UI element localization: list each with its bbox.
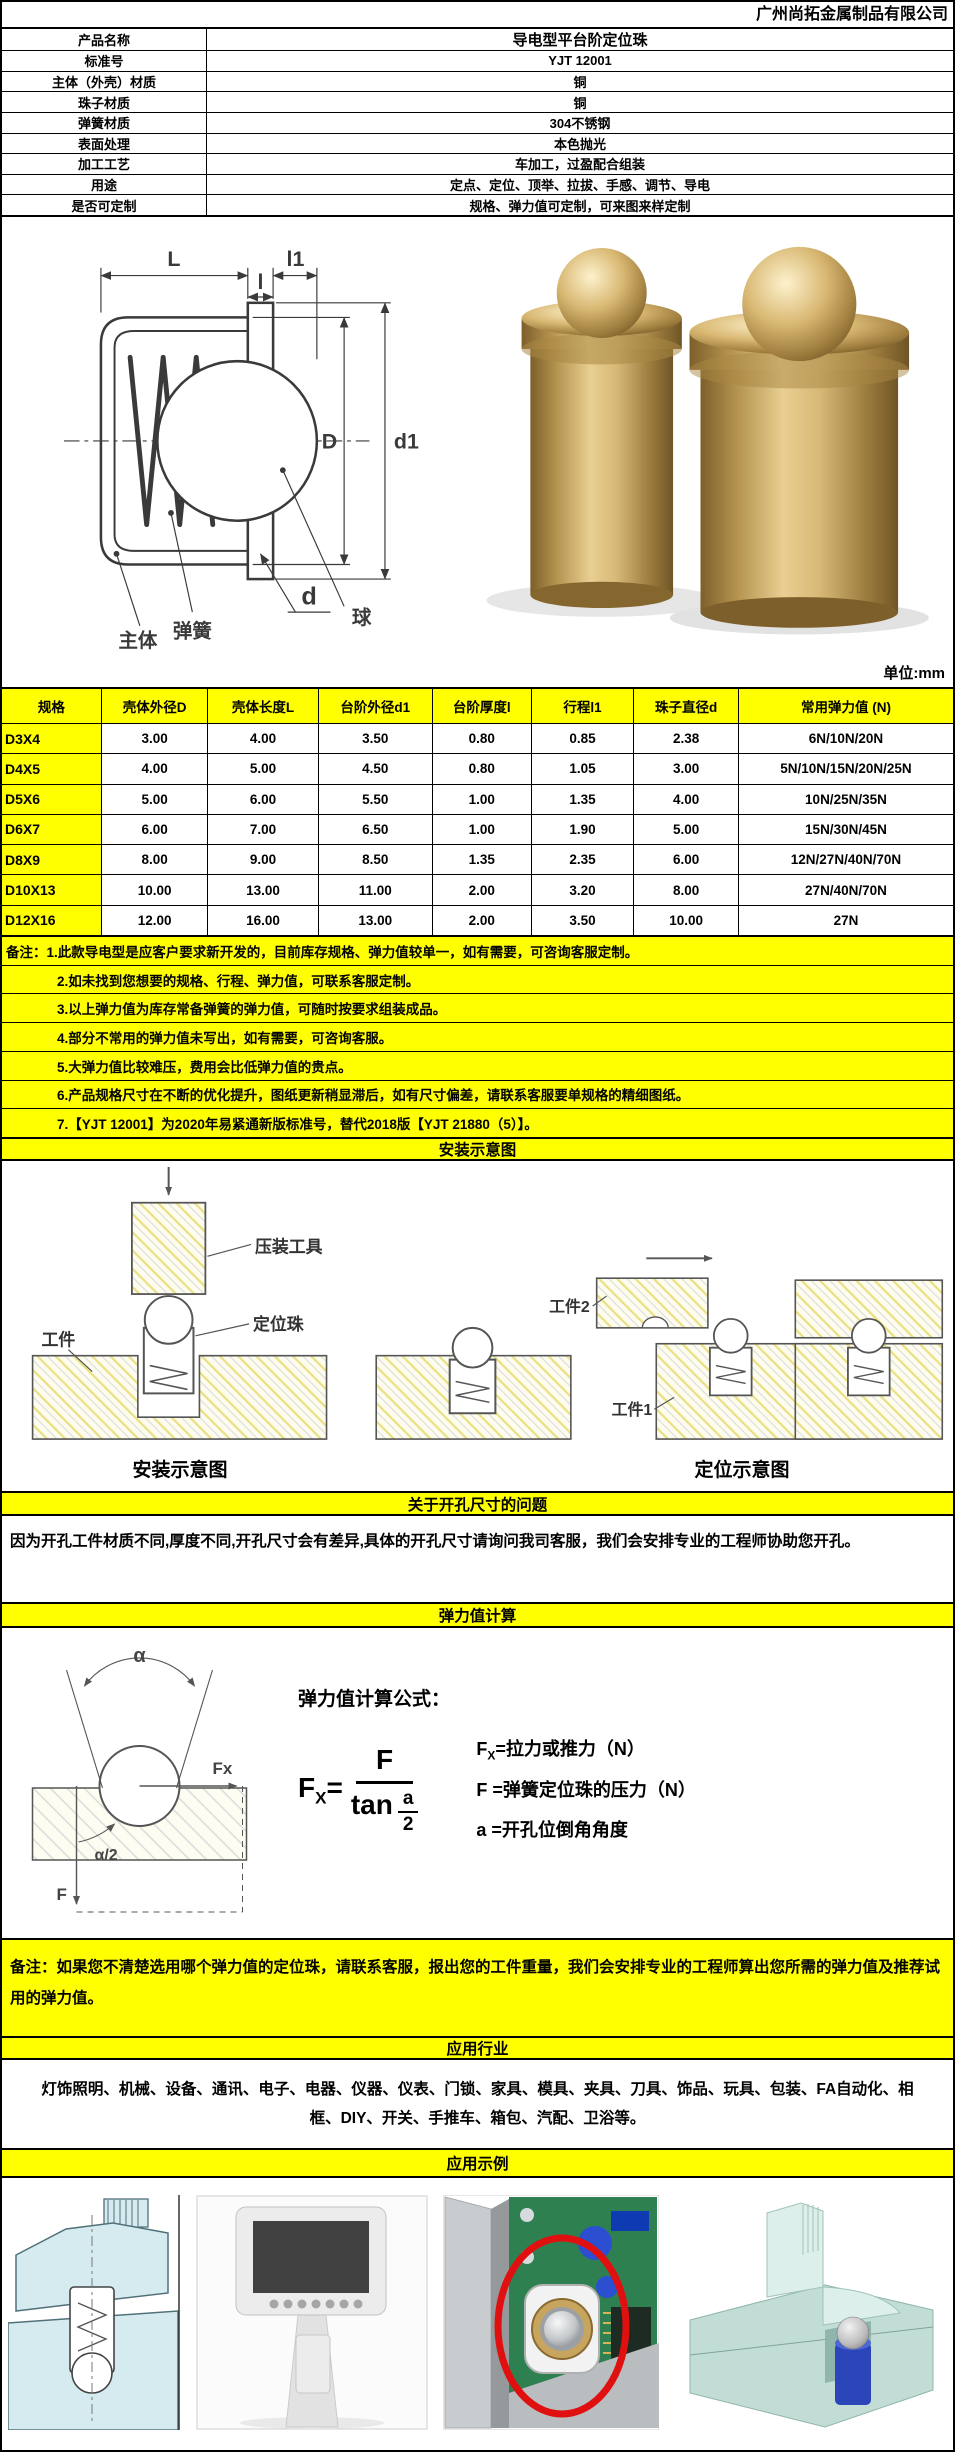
size-cell: 27N <box>739 906 953 935</box>
spec-value: 铜 <box>207 72 953 92</box>
size-cell: 1.90 <box>532 815 635 844</box>
size-cell: 6.00 <box>634 845 739 874</box>
dim-l-label: l <box>257 270 263 294</box>
fx-label: Fx <box>213 1759 233 1778</box>
f-label: F <box>57 1885 67 1904</box>
spec-label: 表面处理 <box>2 134 207 154</box>
spec-row: 是否可定制 规格、弹力值可定制，可来图来样定制 <box>2 195 953 215</box>
size-cell: 1.00 <box>433 785 532 814</box>
ball <box>742 247 856 361</box>
note-line: 2.如未找到您想要的规格、行程、弹力值，可联系客服定制。 <box>2 966 953 995</box>
column-header: 珠子直径d <box>634 689 739 723</box>
spec-value: 定点、定位、顶举、拉拔、手感、调节、导电 <box>207 175 953 195</box>
spec-label: 标准号 <box>2 51 207 71</box>
spring-force-formula: FX= F tan a 2 <box>298 1744 418 1835</box>
dimension-drawing-area: L l1 l D d1 d 弹簧 球 主体 <box>2 217 953 687</box>
note-line: 5.大弹力值比较难压，费用会比低弹力值的贵点。 <box>2 1052 953 1081</box>
size-cell: 8.00 <box>634 875 739 904</box>
formula-legend: FX=拉力或推力（N） F =弹簧定位珠的压力（N） a =开孔位倒角角度 <box>476 1729 696 1851</box>
product-sheet: 广州尚拓金属制品有限公司 产品名称 导电型平台阶定位珠 标准号 YJT 1200… <box>0 0 955 2452</box>
spec-row: 珠子材质 铜 <box>2 92 953 113</box>
size-cell: 27N/40N/70N <box>739 875 953 904</box>
size-table-header: 规格 壳体外径D 壳体长度L 台阶外径d1 台阶厚度l 行程l1 珠子直径d 常… <box>2 689 953 723</box>
press-tool-label: 压装工具 <box>255 1236 323 1256</box>
spec-row: 标准号 YJT 12001 <box>2 51 953 72</box>
size-cell: 5.00 <box>634 815 739 844</box>
size-cell: D3X4 <box>2 724 102 753</box>
spec-value: 本色抛光 <box>207 134 953 154</box>
size-cell: 5.00 <box>102 785 209 814</box>
size-cell: 12N/27N/40N/70N <box>739 845 953 874</box>
formula-equals: = <box>326 1772 342 1803</box>
size-cell: 1.00 <box>433 815 532 844</box>
spec-value: 规格、弹力值可定制，可来图来样定制 <box>207 195 953 215</box>
formula-lhs-sub: X <box>315 1788 326 1807</box>
size-cell: 5.00 <box>208 754 318 783</box>
product-photo <box>470 235 942 643</box>
ball <box>714 1319 748 1353</box>
enclosure-panel <box>445 2197 491 2428</box>
size-cell: 2.00 <box>433 906 532 935</box>
size-cell: 4.00 <box>634 785 739 814</box>
size-cell: 2.35 <box>532 845 635 874</box>
size-cell: 3.20 <box>532 875 635 904</box>
ball <box>837 2317 869 2349</box>
column-header: 台阶厚度l <box>433 689 532 723</box>
remark-block: 备注：如果您不清楚选用哪个弹力值的定位珠，请联系客服，报出您的工件重量，我们会安… <box>2 1938 953 2036</box>
example-image-cross-section <box>8 2195 180 2430</box>
size-cell: 2.00 <box>433 875 532 904</box>
dim-l1-label: l1 <box>287 247 305 271</box>
spec-row: 弹簧材质 304不锈钢 <box>2 113 953 134</box>
size-cell: 9.00 <box>208 845 318 874</box>
legend-line: F =弹簧定位珠的压力（N） <box>476 1770 696 1811</box>
size-cell: 4.00 <box>208 724 318 753</box>
spec-value: 车加工，过盈配合组装 <box>207 154 953 174</box>
size-cell: 13.00 <box>208 875 318 904</box>
half-angle-label: α/2 <box>95 1847 118 1864</box>
plunger-photo-right <box>690 247 910 628</box>
size-cell: 6.00 <box>208 785 318 814</box>
spec-row: 表面处理 本色抛光 <box>2 134 953 155</box>
size-cell: 8.50 <box>319 845 433 874</box>
screen <box>253 2221 369 2293</box>
note-line: 3.以上弹力值为库存常备弹簧的弹力值，可随时按要求组装成品。 <box>2 994 953 1023</box>
formula-tan: tan <box>351 1789 393 1821</box>
install-diagram: 压装工具 工件 定位珠 工件2 <box>2 1161 953 1449</box>
formula-numerator: F <box>356 1744 413 1784</box>
size-cell: 2.38 <box>634 724 739 753</box>
workpiece-label: 工件 <box>42 1330 76 1350</box>
install-section-title: 安装示意图 <box>2 1137 953 1161</box>
formula-angle: a <box>398 1789 419 1813</box>
spec-label: 主体（外壳）材质 <box>2 72 207 92</box>
size-table: 规格 壳体外径D 壳体长度L 台阶外径d1 台阶厚度l 行程l1 珠子直径d 常… <box>2 687 953 937</box>
size-cell: 6.50 <box>319 815 433 844</box>
spec-value: 铜 <box>207 92 953 112</box>
industries-text: 灯饰照明、机械、设备、通讯、电子、电器、仪器、仪表、门锁、家具、模具、夹具、刀具… <box>2 2060 953 2148</box>
column-header: 壳体外径D <box>102 689 209 723</box>
install-step-press <box>33 1167 327 1439</box>
spec-label: 是否可定制 <box>2 195 207 215</box>
ball <box>544 2311 580 2347</box>
stand-door <box>296 2335 330 2393</box>
table-row: D6X7 6.00 7.00 6.50 1.00 1.90 5.00 15N/3… <box>2 814 953 844</box>
size-cell: 10.00 <box>634 906 739 935</box>
size-cell: 1.35 <box>532 785 635 814</box>
spec-label: 弹簧材质 <box>2 113 207 133</box>
industries-section-title: 应用行业 <box>2 2036 953 2060</box>
calc-right-panel: 弹力值计算公式： FX= F tan a 2 <box>276 1628 953 1938</box>
spec-table: 产品名称 导电型平台阶定位珠 标准号 YJT 12001 主体（外壳）材质 铜 … <box>2 27 953 217</box>
ball-label: 球 <box>352 606 372 629</box>
size-cell: D4X5 <box>2 754 102 783</box>
note-line: 备注：1.此款导电型是应客户要求新开发的，目前库存规格、弹力值较单一，如有需要，… <box>2 937 953 966</box>
size-cell: 0.85 <box>532 724 635 753</box>
alpha-label: α <box>133 1645 146 1667</box>
hole-section-title: 关于开孔尺寸的问题 <box>2 1491 953 1516</box>
spec-value: YJT 12001 <box>207 51 953 71</box>
size-cell: 3.00 <box>634 754 739 783</box>
workpiece1-label: 工件1 <box>612 1400 653 1419</box>
size-cell: 3.50 <box>319 724 433 753</box>
press-tool <box>132 1203 205 1294</box>
ball <box>557 248 647 338</box>
note-line: 4.部分不常用的弹力值未写出，如有需要，可咨询客服。 <box>2 1023 953 1052</box>
technical-drawing: L l1 l D d1 d 弹簧 球 主体 <box>40 225 442 653</box>
size-cell: 4.50 <box>319 754 433 783</box>
dim-L-label: L <box>167 247 180 271</box>
install-diagram-box: 压装工具 工件 定位珠 工件2 <box>2 1161 953 1491</box>
install-caption: 安装示意图 <box>70 1455 290 1482</box>
size-cell: 0.80 <box>433 754 532 783</box>
force-diagram: α Fx α/2 F <box>8 1628 276 1930</box>
formula-label: 弹力值计算公式： <box>298 1684 953 1711</box>
ball <box>453 1328 493 1368</box>
ball <box>157 361 317 521</box>
spec-row: 产品名称 导电型平台阶定位珠 <box>2 29 953 51</box>
spec-row: 加工工艺 车加工，过盈配合组装 <box>2 154 953 175</box>
size-cell: 6N/10N/20N <box>739 724 953 753</box>
size-cell: 4.00 <box>102 754 209 783</box>
spec-row: 用途 定点、定位、顶举、拉拔、手感、调节、导电 <box>2 175 953 196</box>
spec-label: 珠子材质 <box>2 92 207 112</box>
size-cell: 0.80 <box>433 724 532 753</box>
size-cell: D5X6 <box>2 785 102 814</box>
table-row: D8X9 8.00 9.00 8.50 1.35 2.35 6.00 12N/2… <box>2 844 953 874</box>
size-cell: 1.35 <box>433 845 532 874</box>
column-header: 壳体长度L <box>208 689 318 723</box>
note-line: 6.产品规格尺寸在不断的优化提升，图纸更新稍显滞后，如有尺寸偏差，请联系客服要单… <box>2 1081 953 1110</box>
size-cell: 12.00 <box>102 906 209 935</box>
size-cell: 11.00 <box>319 875 433 904</box>
legend-line: a =开孔位倒角角度 <box>476 1810 696 1851</box>
example-image-cad-fixture <box>675 2195 947 2430</box>
example-image-kiosk <box>196 2195 428 2430</box>
plunger-photo-left <box>522 248 682 608</box>
component <box>611 2211 649 2231</box>
table-row: D10X13 10.00 13.00 11.00 2.00 3.20 8.00 … <box>2 874 953 904</box>
size-cell: 5.50 <box>319 785 433 814</box>
unit-note: 单位:mm <box>883 662 945 683</box>
size-cell: 16.00 <box>208 906 318 935</box>
legend-line: FX=拉力或推力（N） <box>476 1729 696 1770</box>
fixture-base <box>690 2285 933 2427</box>
table-row: D3X4 3.00 4.00 3.50 0.80 0.85 2.38 6N/10… <box>2 723 953 753</box>
size-cell: 3.00 <box>102 724 209 753</box>
dim-D-label: D <box>322 430 337 454</box>
note-line: 7.【YJT 12001】为2020年易紧通新版标准号，替代2018版【YJT … <box>2 1109 953 1137</box>
spec-label: 加工工艺 <box>2 154 207 174</box>
workpiece2-label: 工件2 <box>549 1297 590 1316</box>
table-row: D4X5 4.00 5.00 4.50 0.80 1.05 3.00 5N/10… <box>2 753 953 783</box>
calc-section-title: 弹力值计算 <box>2 1602 953 1628</box>
formula-lhs: F <box>298 1772 315 1803</box>
column-header: 规格 <box>2 689 102 723</box>
column-header: 台阶外径d1 <box>319 689 433 723</box>
size-cell: D6X7 <box>2 815 102 844</box>
size-cell: 10.00 <box>102 875 209 904</box>
install-step-installed <box>376 1328 571 1439</box>
column-header: 行程l1 <box>532 689 635 723</box>
size-cell: 8.00 <box>102 845 209 874</box>
size-cell: 3.50 <box>532 906 635 935</box>
company-name: 广州尚拓金属制品有限公司 <box>2 2 953 27</box>
column-header: 常用弹力值 (N) <box>739 689 953 723</box>
spec-label: 用途 <box>2 175 207 195</box>
spec-row: 主体（外壳）材质 铜 <box>2 72 953 93</box>
size-cell: D8X9 <box>2 845 102 874</box>
spec-value: 304不锈钢 <box>207 113 953 133</box>
examples-section-title: 应用示例 <box>2 2148 953 2178</box>
hole-paragraph: 因为开孔工件材质不同,厚度不同,开孔尺寸会有差异,具体的开孔尺寸请询问我司客服，… <box>2 1516 953 1602</box>
table-row: D12X16 12.00 16.00 13.00 2.00 3.50 10.00… <box>2 905 953 935</box>
locate-step-engaged <box>795 1280 942 1439</box>
plunger-body <box>835 2343 871 2405</box>
screw <box>520 2208 534 2222</box>
size-cell: 1.05 <box>532 754 635 783</box>
spec-value: 导电型平台阶定位珠 <box>207 29 953 50</box>
body-label: 主体 <box>118 629 157 652</box>
size-cell: 13.00 <box>319 906 433 935</box>
example-image-pcb-plunger <box>443 2195 659 2430</box>
table-row: D5X6 5.00 6.00 5.50 1.00 1.35 4.00 10N/2… <box>2 784 953 814</box>
size-cell: D12X16 <box>2 906 102 935</box>
dim-d1-label: d1 <box>394 430 419 454</box>
size-cell: 7.00 <box>208 815 318 844</box>
locate-caption: 定位示意图 <box>632 1455 852 1482</box>
spring-label: 弹簧 <box>173 619 212 642</box>
dim-d-label: d <box>301 582 316 610</box>
ball <box>145 1296 193 1344</box>
spec-label: 产品名称 <box>2 29 207 50</box>
size-cell: 6.00 <box>102 815 209 844</box>
size-cell: 10N/25N/35N <box>739 785 953 814</box>
calc-box: α Fx α/2 F 弹力值计算公式： FX= F tan a <box>2 1628 953 1938</box>
fixture-tower <box>767 2203 823 2297</box>
plunger-label: 定位珠 <box>253 1314 305 1334</box>
size-cell: D10X13 <box>2 875 102 904</box>
examples-box <box>2 2178 953 2450</box>
notes-section: 备注：1.此款导电型是应客户要求新开发的，目前库存规格、弹力值较单一，如有需要，… <box>2 937 953 1137</box>
size-cell: 15N/30N/45N <box>739 815 953 844</box>
size-cell: 5N/10N/15N/20N/25N <box>739 754 953 783</box>
ball <box>852 1319 886 1353</box>
formula-two: 2 <box>403 1813 414 1835</box>
